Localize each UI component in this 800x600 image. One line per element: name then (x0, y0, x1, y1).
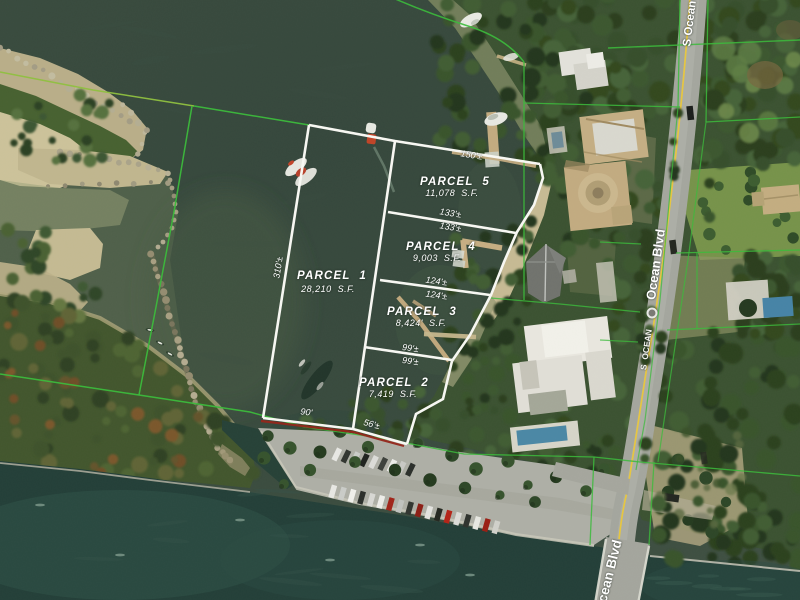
svg-text:8,424' S.F.: 8,424' S.F. (396, 318, 447, 328)
svg-text:11,078 S.F.: 11,078 S.F. (425, 188, 478, 198)
svg-text:PARCEL 2: PARCEL 2 (359, 377, 429, 389)
svg-text:28,210 S.F.: 28,210 S.F. (300, 284, 355, 294)
svg-text:PARCEL 3: PARCEL 3 (387, 306, 457, 318)
svg-text:7,419 S.F.: 7,419 S.F. (369, 389, 417, 399)
svg-text:9,003 S.F.: 9,003 S.F. (413, 253, 461, 263)
svg-text:PARCEL 5: PARCEL 5 (420, 176, 490, 188)
svg-text:PARCEL 1: PARCEL 1 (297, 270, 367, 282)
svg-text:90': 90' (300, 406, 313, 417)
svg-text:PARCEL 4: PARCEL 4 (406, 241, 476, 253)
